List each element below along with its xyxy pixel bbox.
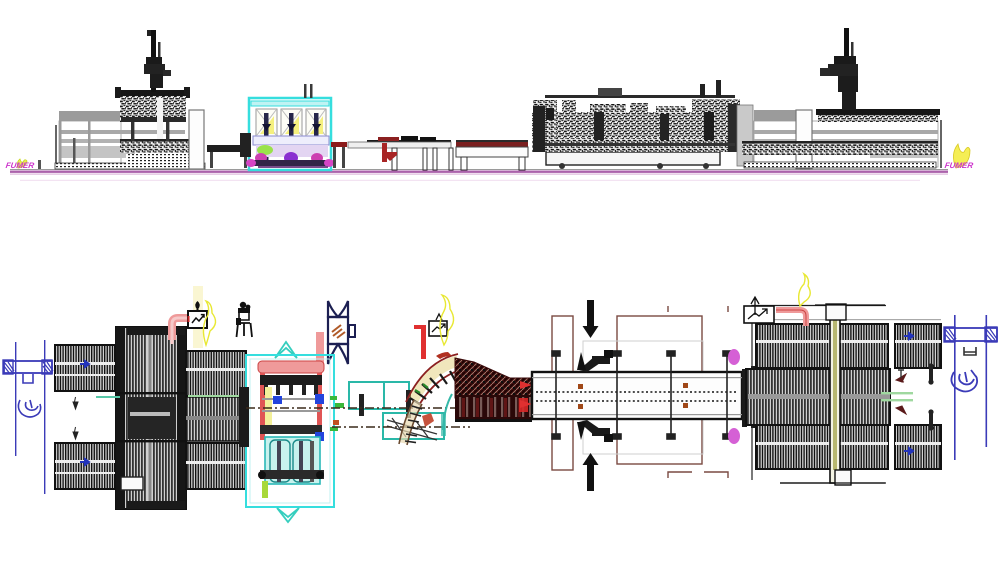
svg-text:FUMER: FUMER: [944, 161, 974, 170]
svg-text:FUMER: FUMER: [5, 161, 35, 170]
